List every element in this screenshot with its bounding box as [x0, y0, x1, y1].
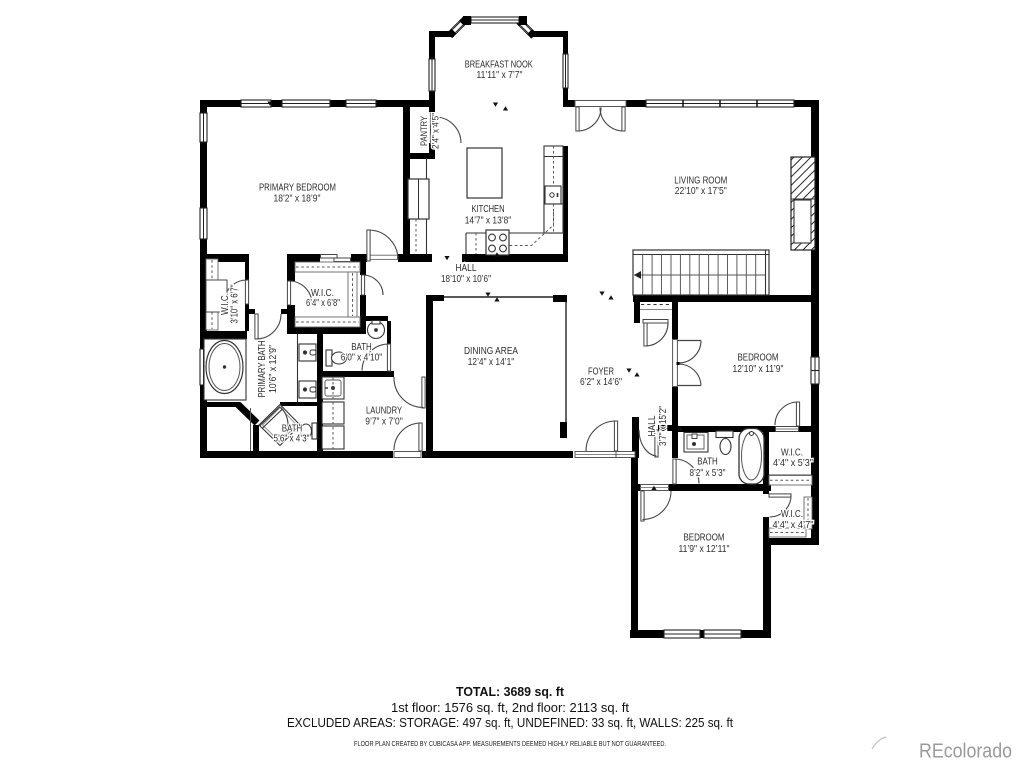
svg-text:11’9" x 12’11": 11’9" x 12’11"	[679, 544, 730, 555]
svg-text:22’10" x 17’5": 22’10" x 17’5"	[675, 186, 727, 197]
svg-text:10’6" x 12’9": 10’6" x 12’9"	[268, 345, 279, 393]
svg-text:2’4" x 4’5": 2’4" x 4’5"	[431, 113, 441, 149]
svg-text:HALL: HALL	[456, 263, 477, 274]
svg-text:REcolorado: REcolorado	[919, 740, 1012, 763]
svg-text:4’4" x 4’7": 4’4" x 4’7"	[773, 520, 814, 531]
svg-text:EXCLUDED AREAS: STORAGE: 497 s: EXCLUDED AREAS: STORAGE: 497 sq. ft, UND…	[287, 715, 733, 730]
svg-text:PRIMARY BATH: PRIMARY BATH	[257, 341, 268, 398]
svg-text:TOTAL: 3689 sq. ft: TOTAL: 3689 sq. ft	[456, 684, 565, 699]
svg-text:HALL: HALL	[647, 415, 658, 436]
svg-text:BATH: BATH	[697, 457, 718, 468]
svg-text:6’2" x 14’6": 6’2" x 14’6"	[580, 377, 622, 388]
svg-text:3’10" x 6’7": 3’10" x 6’7"	[230, 284, 241, 323]
svg-text:FLOOR PLAN CREATED BY CUBICASA: FLOOR PLAN CREATED BY CUBICASA APP. MEAS…	[354, 741, 666, 748]
svg-text:LIVING ROOM: LIVING ROOM	[674, 176, 727, 187]
svg-text:W.I.C.: W.I.C.	[781, 509, 803, 520]
svg-text:18’2" x 18’9": 18’2" x 18’9"	[274, 194, 321, 205]
svg-text:BEDROOM: BEDROOM	[738, 352, 779, 363]
svg-text:12’10" x 11’9": 12’10" x 11’9"	[733, 364, 784, 375]
svg-text:BREAKFAST NOOK: BREAKFAST NOOK	[465, 59, 533, 70]
svg-text:W.I.C.: W.I.C.	[781, 448, 803, 459]
svg-text:4’4" x 5’3": 4’4" x 5’3"	[773, 458, 813, 469]
svg-text:DINING AREA: DINING AREA	[464, 346, 518, 357]
svg-text:PANTRY: PANTRY	[419, 116, 429, 146]
svg-text:FOYER: FOYER	[588, 367, 614, 378]
svg-text:6’0" x 4’10": 6’0" x 4’10"	[341, 353, 383, 364]
svg-text:9’7" x 7’0": 9’7" x 7’0"	[365, 417, 403, 428]
svg-text:3’7" x 15’2": 3’7" x 15’2"	[658, 406, 669, 446]
svg-text:PRIMARY BEDROOM: PRIMARY BEDROOM	[259, 182, 336, 193]
svg-text:14’7" x 13’8": 14’7" x 13’8"	[465, 216, 512, 227]
svg-text:12’4" x 14’1": 12’4" x 14’1"	[468, 357, 515, 368]
svg-text:BEDROOM: BEDROOM	[684, 533, 725, 544]
svg-text:BATH: BATH	[351, 342, 372, 353]
svg-text:11’11" x 7’7": 11’11" x 7’7"	[477, 70, 523, 81]
svg-text:8’2" x 5’3": 8’2" x 5’3"	[690, 468, 726, 479]
svg-text:KITCHEN: KITCHEN	[472, 204, 505, 215]
svg-text:18’10" x 10’6": 18’10" x 10’6"	[441, 274, 491, 285]
svg-text:LAUNDRY: LAUNDRY	[366, 406, 402, 417]
svg-text:5’6" x 4’3": 5’6" x 4’3"	[274, 434, 310, 445]
svg-text:1st floor: 1576 sq. ft, 2nd fl: 1st floor: 1576 sq. ft, 2nd floor: 2113 …	[391, 700, 629, 715]
svg-text:6’4" x 6’8": 6’4" x 6’8"	[306, 298, 340, 309]
